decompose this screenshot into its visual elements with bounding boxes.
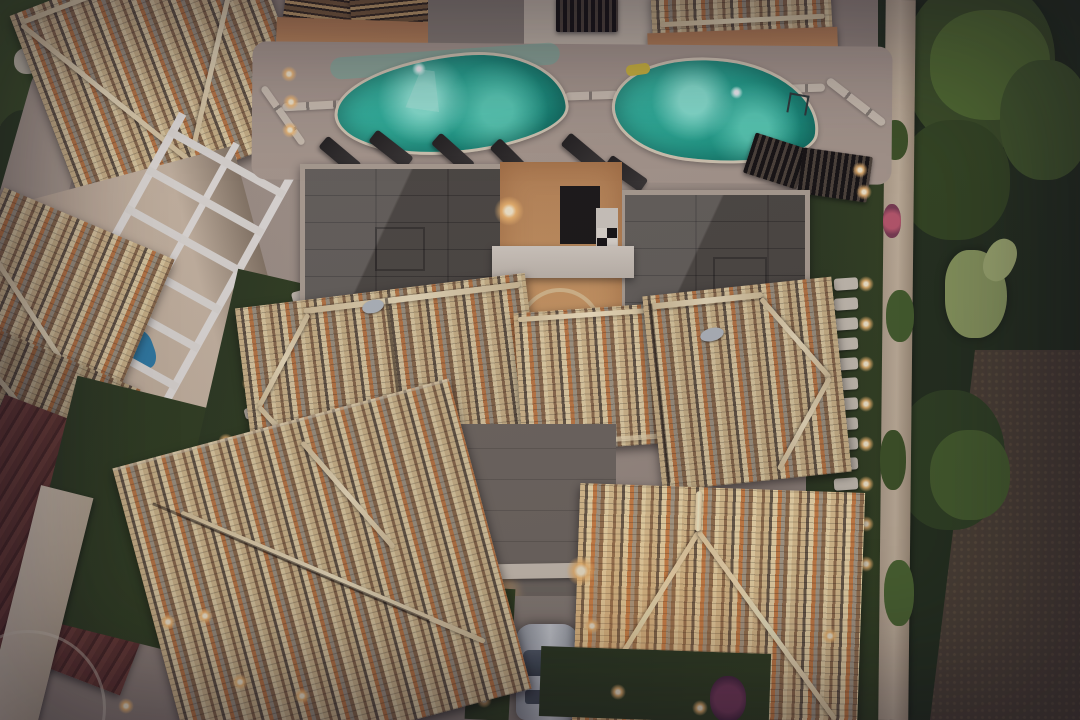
tree-canopy xyxy=(900,120,1010,240)
path-light xyxy=(858,316,874,332)
deck-light xyxy=(283,94,299,110)
pink-flowers xyxy=(883,204,901,238)
lawn-light xyxy=(692,700,708,716)
stepping-stone xyxy=(834,277,859,291)
pool-ladder xyxy=(786,92,809,115)
louver-grate-top xyxy=(556,0,618,32)
wall-vine xyxy=(886,290,914,342)
stepping-stone xyxy=(834,477,859,491)
underwater-light xyxy=(730,86,743,99)
deck-light xyxy=(281,66,297,82)
garden-shrub xyxy=(930,430,1010,520)
eave-light xyxy=(584,618,600,634)
path-light xyxy=(858,276,874,292)
garden-light xyxy=(294,688,310,704)
deck-light xyxy=(282,122,298,138)
path-light xyxy=(858,436,874,452)
tree-canopy xyxy=(1000,60,1080,180)
path-light xyxy=(858,476,874,492)
roof-middle-right xyxy=(642,277,851,492)
path-light xyxy=(858,396,874,412)
path-light xyxy=(858,356,874,372)
deck-light xyxy=(856,184,872,200)
eave-light xyxy=(566,556,596,586)
checkered-tile xyxy=(597,228,617,248)
garden-light xyxy=(118,698,134,714)
lawn-light xyxy=(822,628,838,644)
lawn-light xyxy=(610,684,626,700)
courtyard-light xyxy=(494,196,524,226)
garden-light xyxy=(160,614,176,630)
white-bridge xyxy=(492,246,634,278)
stepping-stone xyxy=(834,317,859,331)
garden-light xyxy=(197,608,213,624)
garden-light xyxy=(232,674,248,690)
bougainvillea xyxy=(710,676,746,720)
outdoor-furniture xyxy=(560,186,600,244)
aerial-photo-villa-complex xyxy=(0,0,1080,720)
deck-light xyxy=(852,162,868,178)
stepping-stone xyxy=(834,297,859,311)
